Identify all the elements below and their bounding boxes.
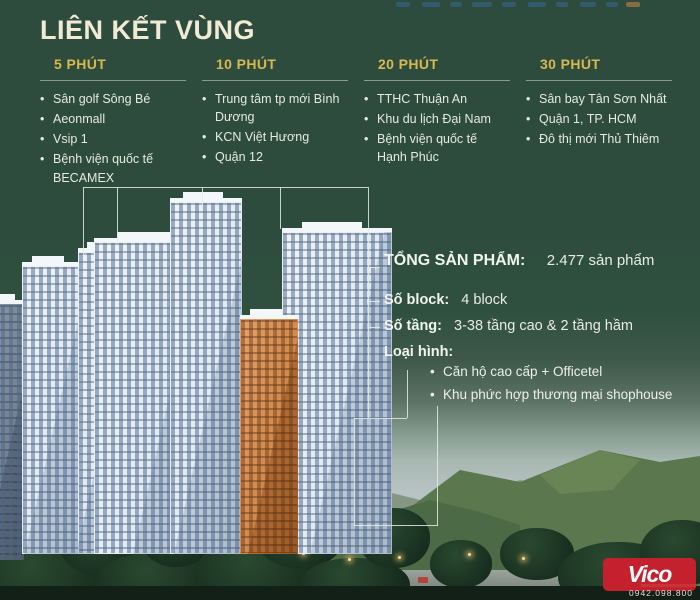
floor-count-label: Số tầng: — [384, 318, 442, 334]
property-type-row: Loại hình: — [384, 344, 453, 360]
infographic-poster: LIÊN KẾT VÙNG 5 PHÚT Sân golf Sông Bé Ae… — [0, 0, 700, 600]
project-info-panel: TỔNG SẢN PHẨM: 2.477 sản phẩm Số block: … — [0, 0, 700, 600]
property-type-list: Căn hộ cao cấp + Officetel Khu phức hợp … — [430, 364, 672, 410]
floor-count-row: Số tầng: 3-38 tầng cao & 2 tầng hầm — [384, 318, 633, 334]
floor-count-value: 3-38 tầng cao & 2 tầng hầm — [454, 318, 633, 334]
watermark-strip — [641, 584, 696, 587]
block-count-value: 4 block — [461, 292, 507, 308]
total-products-row: TỔNG SẢN PHẨM: 2.477 sản phẩm — [384, 252, 654, 270]
block-count-row: Số block: 4 block — [384, 292, 507, 308]
list-item: Căn hộ cao cấp + Officetel — [430, 364, 672, 379]
total-products-label: TỔNG SẢN PHẨM: — [384, 252, 525, 269]
phone-number: 0942.098.800 — [629, 588, 693, 598]
block-count-label: Số block: — [384, 292, 449, 308]
property-type-label: Loại hình: — [384, 344, 453, 360]
total-products-value: 2.477 sản phẩm — [547, 252, 655, 269]
list-item: Khu phức hợp thương mại shophouse — [430, 387, 672, 402]
